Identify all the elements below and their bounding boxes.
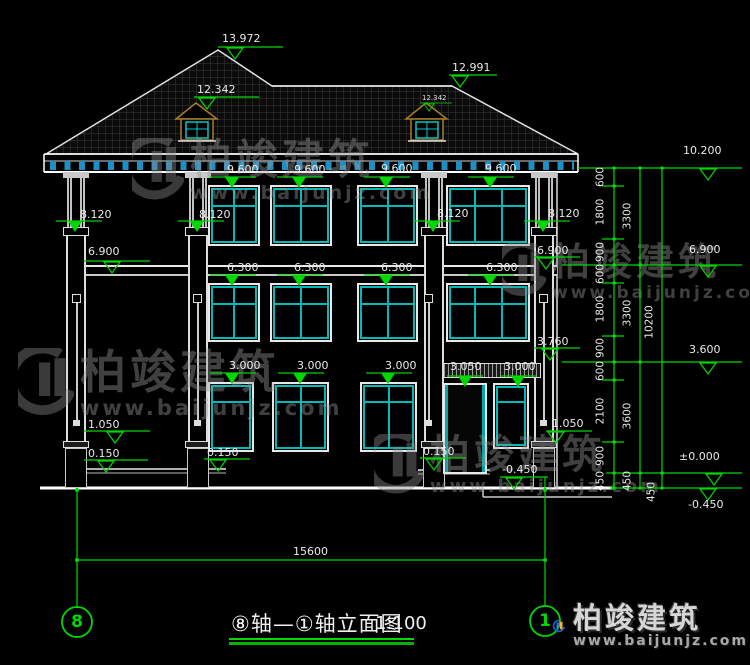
elev-f3-3: 9.600 [381,163,413,175]
elev-cap-2: 8.120 [199,209,231,221]
elev-f2-4: 6.300 [486,262,518,274]
brand-logo-url: www.baijunjz.com [573,633,748,649]
dim-3300: 3300 [623,300,634,327]
elev-peak-left: 13.972 [222,33,261,45]
elev-stack-0000: ±0.000 [679,451,720,463]
elev-f1-3: 3.000 [385,360,417,372]
dim-3600: 3600 [623,403,634,430]
elev-left-0150: 0.150 [88,448,120,460]
elev-stack-m0450: -0.450 [688,499,723,511]
elev-f2-3: 6.300 [381,262,413,274]
brand-logo-icon [552,594,565,658]
brand-logo-text: 柏竣建筑 [573,603,748,633]
dimension-linework [0,0,750,665]
dim-450: 450 [647,482,658,502]
dim-3300: 3300 [623,203,634,230]
elev-cap-4: 8.120 [548,208,580,220]
dim-1800: 1800 [596,199,607,226]
drawing-scale: 1:100 [375,613,427,634]
elev-stack-3600: 3.600 [689,344,721,356]
dim-900: 900 [596,338,607,358]
elev-dormer-right: 12.342 [422,94,447,102]
elev-cap-3: 8.120 [437,208,469,220]
elev-left-1050: 1.050 [88,419,120,431]
elev-right-rail: 1.050 [552,418,584,430]
elev-dormer-left: 12.342 [197,84,236,96]
elev-f1-1: 3.000 [229,360,261,372]
dim-450: 450 [596,471,607,491]
elev-peak-right: 12.991 [452,62,491,74]
dim-600: 600 [596,361,607,381]
dim-2100: 2100 [596,398,607,425]
dim-1800: 1800 [596,296,607,323]
elev-porch-0150b: 0.150 [207,447,239,459]
elev-f2-2: 6.300 [294,262,326,274]
elev-stack-10200: 10.200 [683,145,722,157]
elev-right-mid: 3.760 [537,336,569,348]
elev-porch-0150c: 0.150 [423,446,455,458]
elev-f3-1: 9.600 [227,164,259,176]
elev-f3-4: 9.600 [485,163,517,175]
dim-450: 450 [623,471,634,491]
elev-left-6900: 6.900 [88,246,120,258]
elev-lintel-window: 3.000 [504,361,536,373]
axis-bubble-8: 8 [71,612,83,632]
axis-bubble-1: 1 [539,611,551,631]
elev-cap-1: 8.120 [80,209,112,221]
elev-f3-2: 9.600 [294,164,326,176]
elev-f1-2: 3.000 [297,360,329,372]
dim-600: 600 [596,264,607,284]
title-underline [229,642,414,645]
title-underline [229,638,414,640]
elev-f2-1: 6.300 [227,262,259,274]
dim-total-width: 15600 [293,546,328,558]
dim-900: 900 [596,446,607,466]
dim-900: 900 [596,242,607,262]
elev-lintel-door: 3.050 [450,361,482,373]
elev-ground-right: -0.450 [502,464,537,476]
cad-elevation-drawing: 柏竣建筑 www.baijunjz.com 柏竣建筑 www.baijunjz.… [0,0,750,665]
dim-600: 600 [596,167,607,187]
brand-logo: 柏竣建筑 www.baijunjz.com [552,590,748,662]
elev-stack-6900: 6.900 [689,244,721,256]
dim-10200: 10200 [645,305,656,338]
elev-right-wall: 6.900 [537,245,569,257]
